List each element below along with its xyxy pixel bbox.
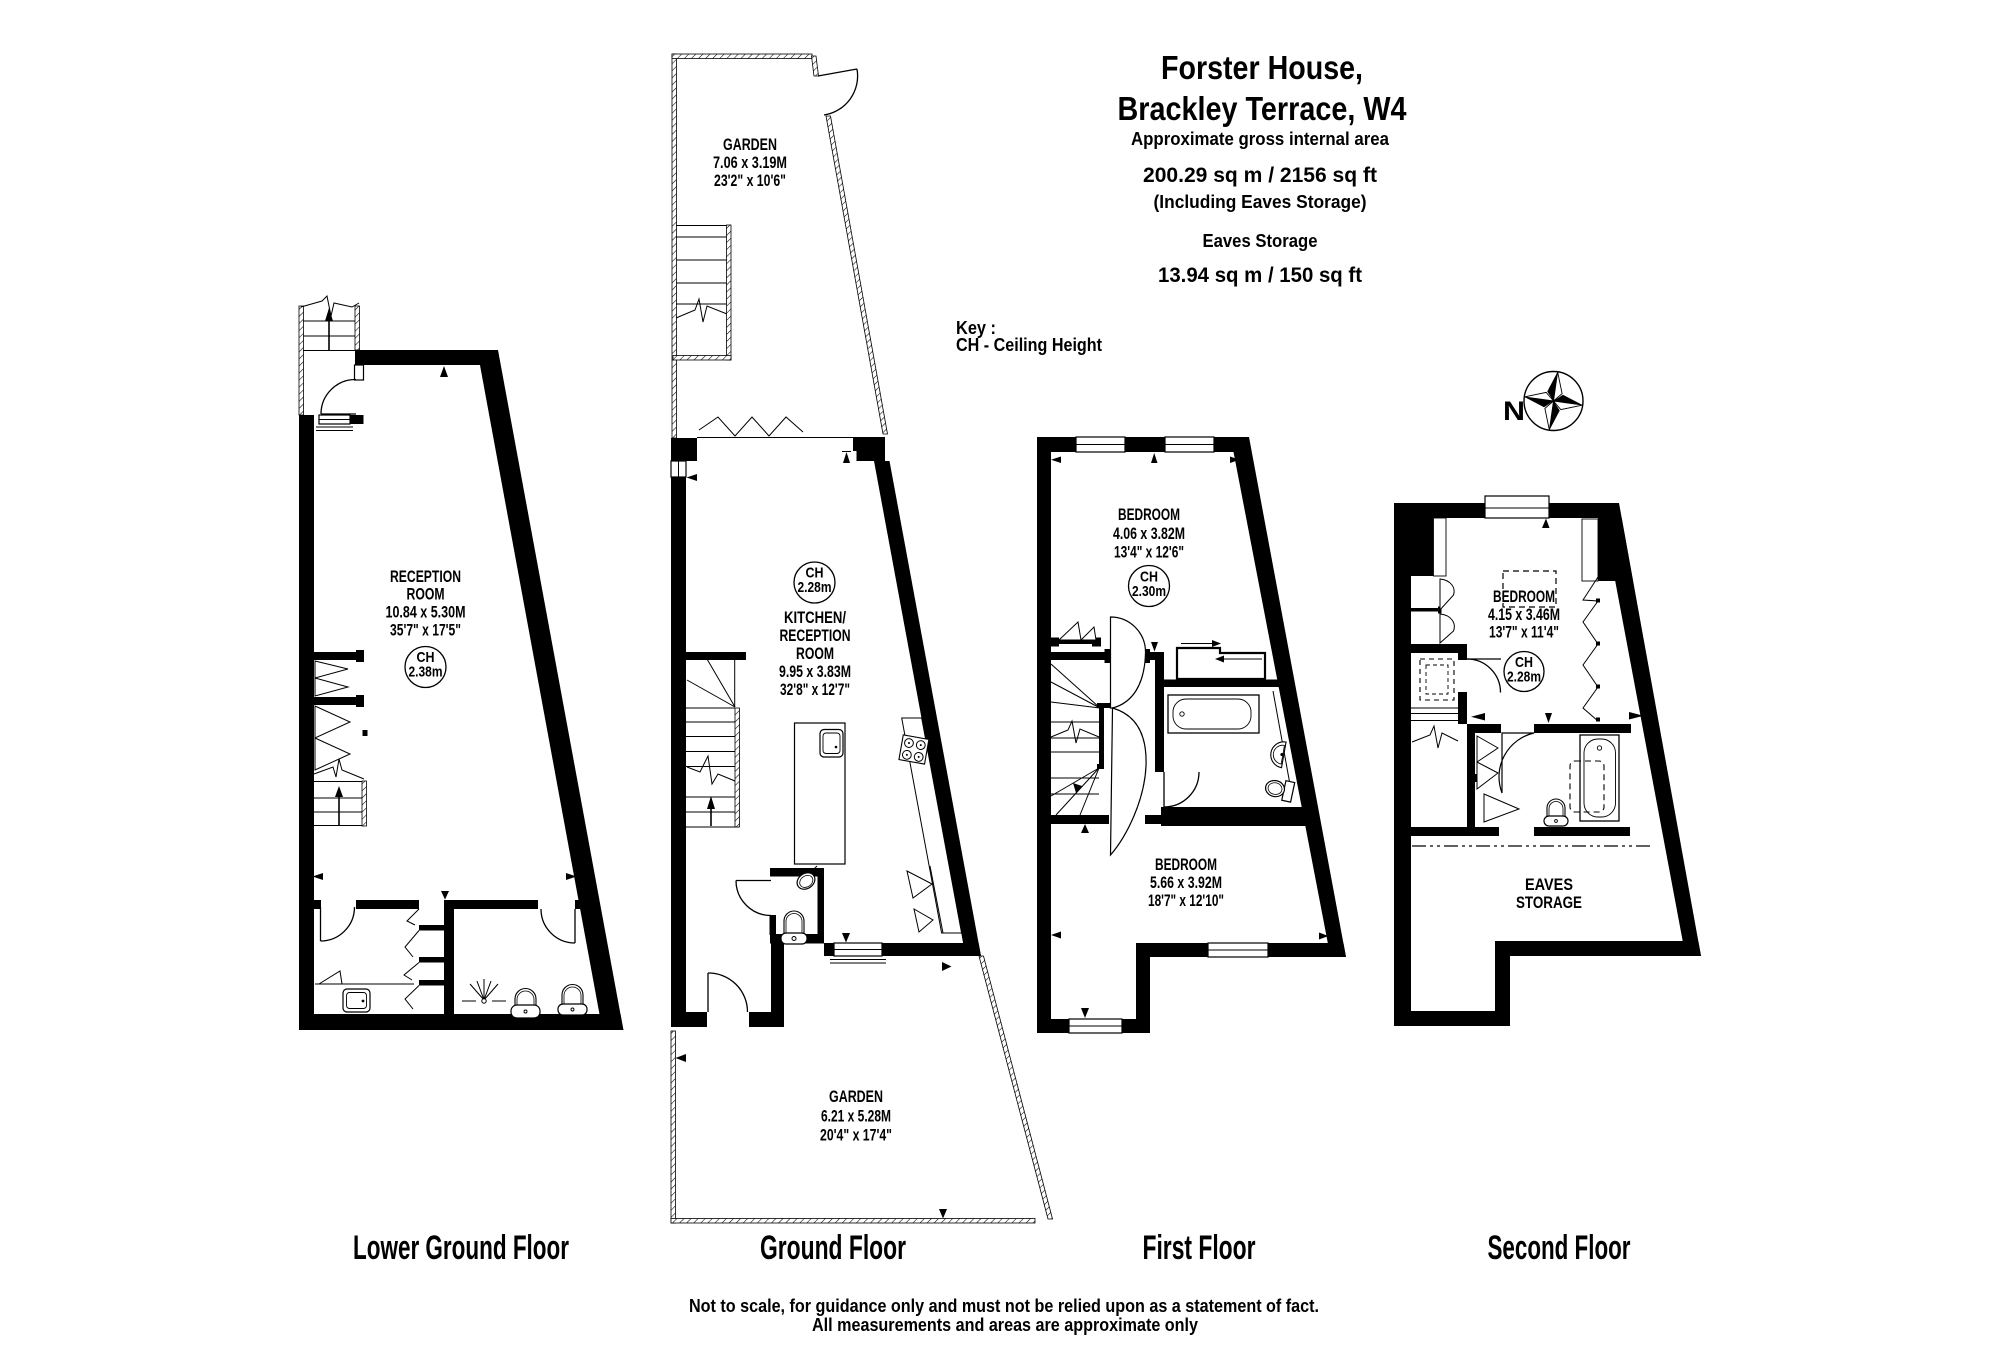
svg-text:4.15 x 3.46M: 4.15 x 3.46M xyxy=(1488,605,1560,624)
svg-text:200.29 sq m / 2156 sq ft: 200.29 sq m / 2156 sq ft xyxy=(1143,163,1377,187)
svg-text:EAVES: EAVES xyxy=(1525,875,1573,894)
svg-text:BEDROOM: BEDROOM xyxy=(1493,587,1555,606)
svg-text:13'4" x 12'6": 13'4" x 12'6" xyxy=(1114,543,1184,562)
svg-text:ROOM: ROOM xyxy=(407,585,445,604)
svg-text:First Floor: First Floor xyxy=(1143,1229,1256,1267)
svg-text:STORAGE: STORAGE xyxy=(1516,893,1582,912)
svg-text:All measurements and areas are: All measurements and areas are approxima… xyxy=(812,1315,1198,1335)
svg-text:2.28m: 2.28m xyxy=(1507,669,1541,686)
svg-text:GARDEN: GARDEN xyxy=(723,135,777,154)
svg-text:13.94 sq m / 150 sq ft: 13.94 sq m / 150 sq ft xyxy=(1158,263,1362,287)
svg-text:5.66 x 3.92M: 5.66 x 3.92M xyxy=(1150,873,1222,892)
svg-text:20'4" x 17'4": 20'4" x 17'4" xyxy=(820,1126,892,1145)
svg-text:Second Floor: Second Floor xyxy=(1488,1229,1631,1267)
svg-text:Approximate gross internal are: Approximate gross internal area xyxy=(1131,129,1390,149)
svg-text:Forster House,: Forster House, xyxy=(1161,49,1363,86)
svg-text:BEDROOM: BEDROOM xyxy=(1155,855,1217,874)
svg-text:Brackley Terrace, W4: Brackley Terrace, W4 xyxy=(1118,90,1408,127)
svg-text:(Including Eaves Storage): (Including Eaves Storage) xyxy=(1154,192,1367,212)
svg-text:9.95 x 3.83M: 9.95 x 3.83M xyxy=(779,662,851,681)
svg-text:RECEPTION: RECEPTION xyxy=(780,626,851,645)
svg-text:Not to scale, for guidance onl: Not to scale, for guidance only and must… xyxy=(689,1296,1319,1316)
svg-text:18'7" x 12'10": 18'7" x 12'10" xyxy=(1148,891,1224,910)
svg-text:4.06 x 3.82M: 4.06 x 3.82M xyxy=(1113,524,1185,543)
svg-text:2.30m: 2.30m xyxy=(1132,583,1166,600)
svg-text:35'7" x 17'5": 35'7" x 17'5" xyxy=(390,621,461,640)
svg-text:BEDROOM: BEDROOM xyxy=(1118,505,1180,524)
svg-text:ROOM: ROOM xyxy=(796,644,834,663)
svg-text:Eaves Storage: Eaves Storage xyxy=(1203,231,1318,251)
svg-text:13'7" x 11'4": 13'7" x 11'4" xyxy=(1489,623,1559,642)
svg-text:Lower Ground Floor: Lower Ground Floor xyxy=(353,1229,569,1267)
svg-text:KITCHEN/: KITCHEN/ xyxy=(784,608,846,627)
svg-text:2.28m: 2.28m xyxy=(798,579,832,596)
svg-text:10.84 x 5.30M: 10.84 x 5.30M xyxy=(386,603,466,622)
svg-text:7.06 x 3.19M: 7.06 x 3.19M xyxy=(713,153,787,172)
svg-text:23'2" x 10'6": 23'2" x 10'6" xyxy=(714,171,786,190)
svg-text:GARDEN: GARDEN xyxy=(829,1087,883,1106)
svg-text:N: N xyxy=(1503,396,1525,426)
svg-text:Ground Floor: Ground Floor xyxy=(760,1229,906,1267)
svg-text:CH - Ceiling Height: CH - Ceiling Height xyxy=(956,335,1102,355)
svg-text:32'8" x 12'7": 32'8" x 12'7" xyxy=(780,680,850,699)
svg-text:6.21 x 5.28M: 6.21 x 5.28M xyxy=(821,1107,891,1126)
svg-text:2.38m: 2.38m xyxy=(409,664,443,681)
svg-text:RECEPTION: RECEPTION xyxy=(390,567,461,586)
